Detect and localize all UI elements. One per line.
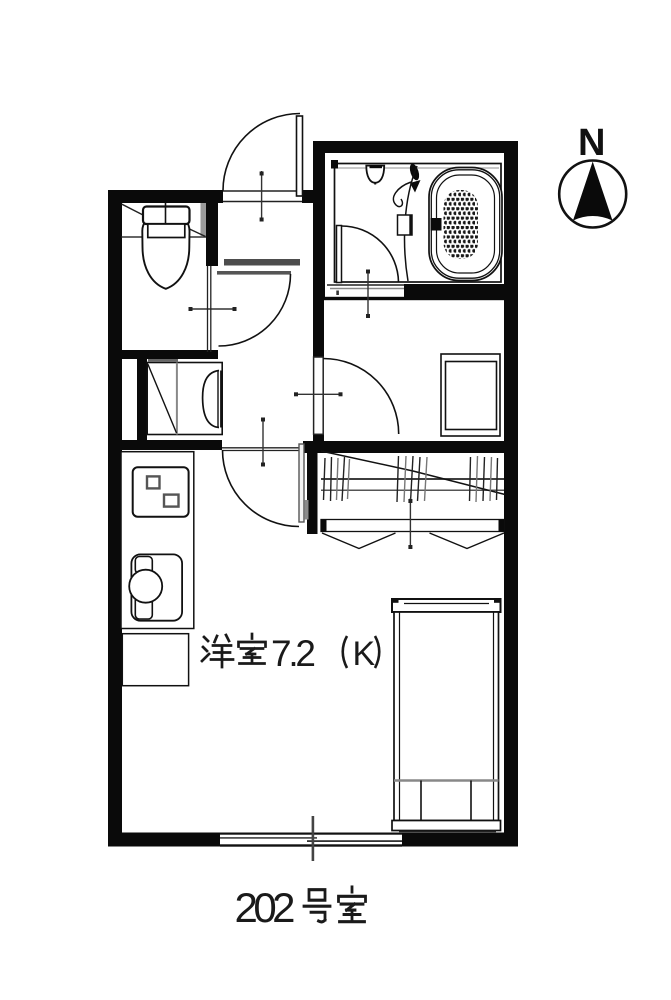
svg-text:K: K <box>353 635 376 673</box>
svg-text:202: 202 <box>235 884 296 931</box>
svg-text:N: N <box>578 122 605 164</box>
svg-text:7.2: 7.2 <box>271 633 316 674</box>
